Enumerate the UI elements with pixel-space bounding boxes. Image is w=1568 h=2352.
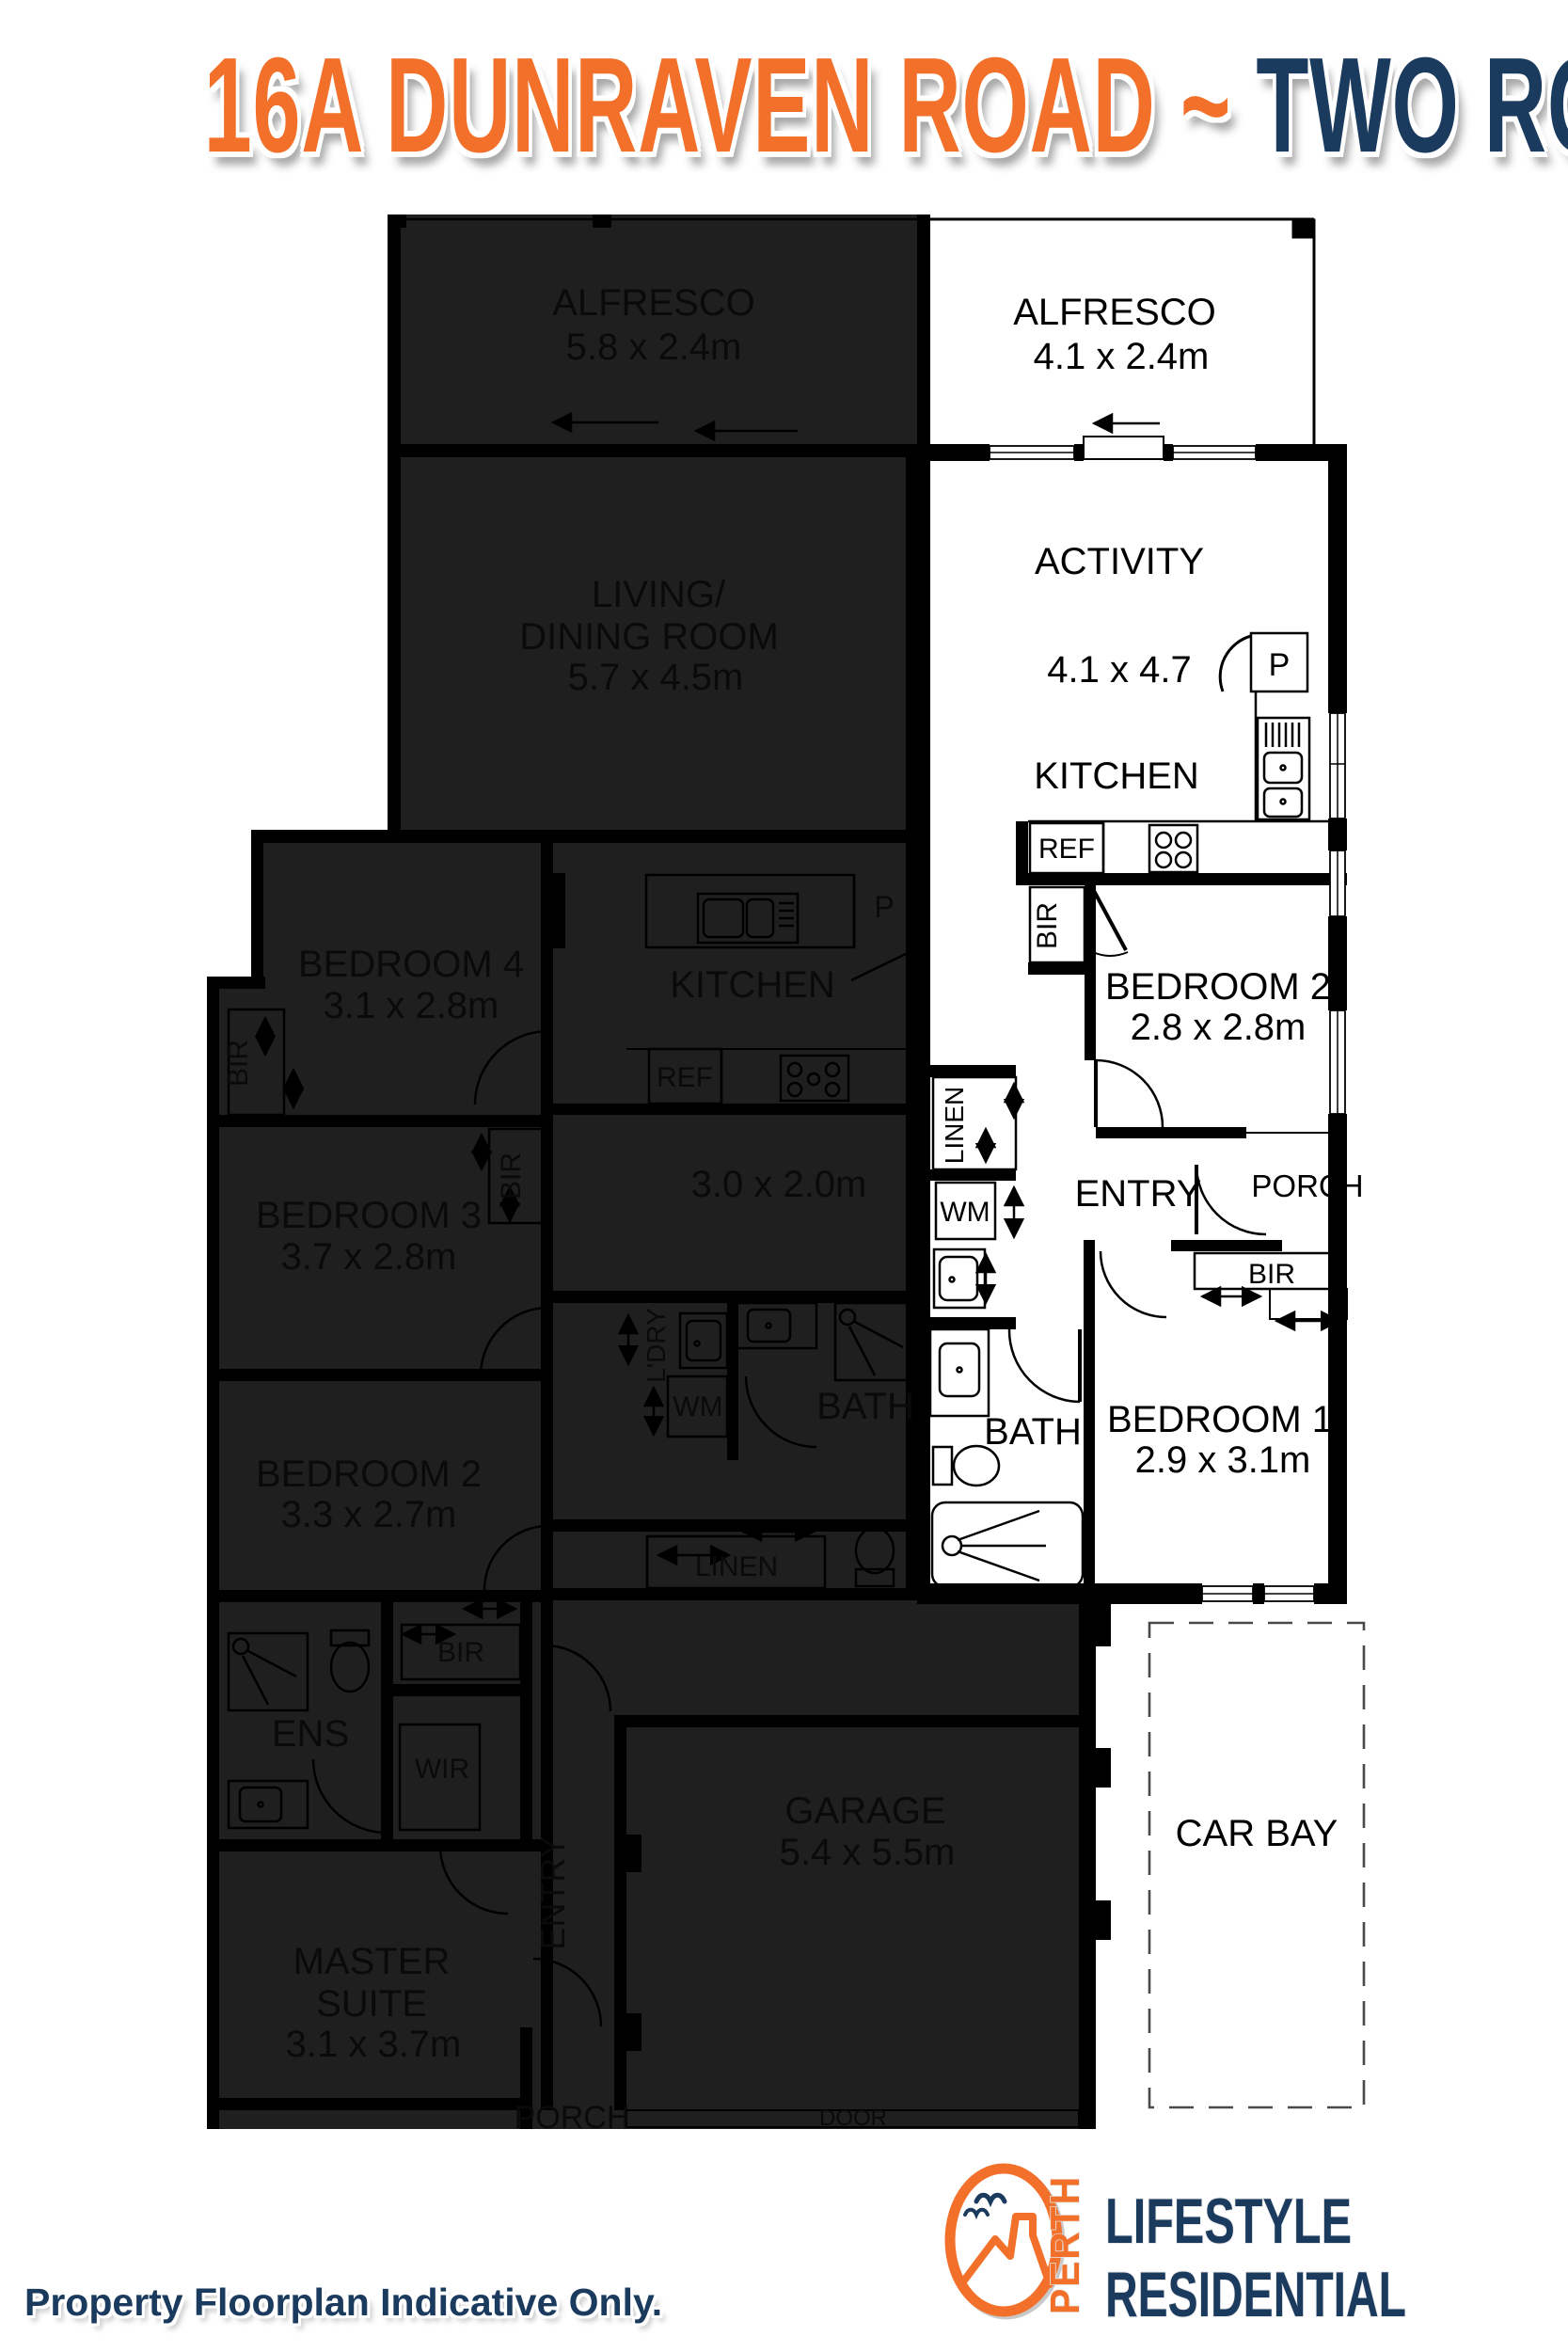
room-label: ENS bbox=[272, 1713, 349, 1755]
room-dims: 5.8 x 2.4m bbox=[566, 326, 742, 368]
pantry-label: P bbox=[1269, 647, 1291, 683]
room-label: KITCHEN bbox=[670, 964, 835, 1006]
room-dims: 4.1 x 4.7 bbox=[1047, 649, 1191, 691]
logo-perth: PERTH bbox=[1042, 2175, 1088, 2314]
entry-label: ENTRY bbox=[1075, 1173, 1202, 1215]
room-label: KITCHEN bbox=[1034, 755, 1199, 797]
disclaimer-text: Property Floorplan Indicative Only. bbox=[24, 2280, 662, 2325]
linen-label: LINEN bbox=[940, 1087, 969, 1164]
room-label: ALFRESCO bbox=[552, 282, 755, 324]
room-dims: 5.4 x 5.5m bbox=[780, 1832, 956, 1873]
floorplan: ALFRESCO 5.8 x 2.4m LIVING/ DINING ROOM … bbox=[0, 0, 1568, 2352]
door-arc-bath-a bbox=[1009, 1329, 1080, 1402]
room-label: BATH bbox=[984, 1411, 1082, 1453]
toilet-icon-a bbox=[933, 1447, 952, 1485]
room-dims: 3.1 x 3.7m bbox=[286, 2024, 462, 2065]
room-label: BEDROOM 2 bbox=[1105, 966, 1331, 1008]
room-label: BEDROOM 3 bbox=[256, 1195, 482, 1236]
robe-label: BIR bbox=[437, 1637, 484, 1668]
fridge-label: REF bbox=[1038, 834, 1095, 865]
room-label: BEDROOM 1 bbox=[1107, 1399, 1333, 1440]
room-dims: 5.7 x 4.5m bbox=[568, 657, 744, 698]
door-arc-bed1-a bbox=[1101, 1251, 1166, 1317]
entry-label: ENTRY bbox=[533, 1836, 572, 1949]
porch-label: PORCH bbox=[1251, 1168, 1363, 1203]
room-label: DINING ROOM bbox=[519, 616, 779, 658]
room-label: LIVING/ bbox=[592, 574, 726, 615]
wm-label: WM bbox=[673, 1391, 722, 1422]
robe-label: BIR bbox=[496, 1152, 527, 1200]
room-dims: 2.8 x 2.8m bbox=[1131, 1007, 1307, 1048]
bir-door-a bbox=[1093, 889, 1126, 950]
car-bay: CAR BAY bbox=[1149, 1623, 1364, 2107]
car-bay-label: CAR BAY bbox=[1176, 1813, 1338, 1854]
wm-label: WM bbox=[940, 1197, 990, 1228]
robe-label: BIR bbox=[1032, 902, 1063, 949]
room-label: BEDROOM 2 bbox=[256, 1454, 482, 1495]
room-label: GARAGE bbox=[784, 1790, 945, 1832]
laundry-label: L'DRY bbox=[641, 1308, 671, 1383]
fridge-label: REF bbox=[657, 1062, 713, 1093]
room-label: ACTIVITY bbox=[1035, 541, 1204, 582]
pantry-label: P bbox=[874, 890, 894, 924]
robe-label: BIR bbox=[1248, 1259, 1295, 1290]
pantry-door-a bbox=[1220, 636, 1251, 691]
room-label: ALFRESCO bbox=[1013, 292, 1216, 333]
agency-logo: PERTH LIFESTYLE RESIDENTIAL bbox=[933, 2151, 1413, 2344]
room-dims: 3.7 x 2.8m bbox=[281, 1236, 457, 1278]
room-dims: 3.1 x 2.8m bbox=[324, 985, 499, 1026]
room-dims: 3.3 x 2.7m bbox=[281, 1494, 457, 1535]
room-label: BEDROOM 4 bbox=[298, 944, 524, 985]
porch-label: PORCH bbox=[515, 2100, 630, 2136]
room-label: SUITE bbox=[316, 1983, 427, 2025]
door-arc-bed2-a bbox=[1096, 1060, 1163, 1127]
car-bay-outline bbox=[1149, 1623, 1364, 2107]
sliding-door-a bbox=[1084, 437, 1164, 459]
logo-lifestyle: LIFESTYLE bbox=[1105, 2185, 1352, 2257]
room-label: MASTER bbox=[293, 1941, 451, 1982]
robe-label: BIR bbox=[223, 1040, 254, 1087]
logo-residential: RESIDENTIAL bbox=[1105, 2259, 1406, 2330]
wir-label: WIR bbox=[415, 1754, 469, 1785]
garage-door-label: DOOR bbox=[819, 2106, 887, 2131]
linen-label: LINEN bbox=[695, 1551, 778, 1582]
active-labels: ALFRESCO 4.1 x 2.4m ACTIVITY 4.1 x 4.7 P… bbox=[940, 292, 1364, 1481]
active-door-arcs bbox=[1009, 1060, 1266, 1402]
room-dims: 4.1 x 2.4m bbox=[1034, 336, 1210, 377]
room-label: BATH bbox=[816, 1386, 914, 1427]
room-dims: 3.0 x 2.0m bbox=[691, 1164, 867, 1205]
room-dims: 2.9 x 3.1m bbox=[1135, 1439, 1311, 1481]
